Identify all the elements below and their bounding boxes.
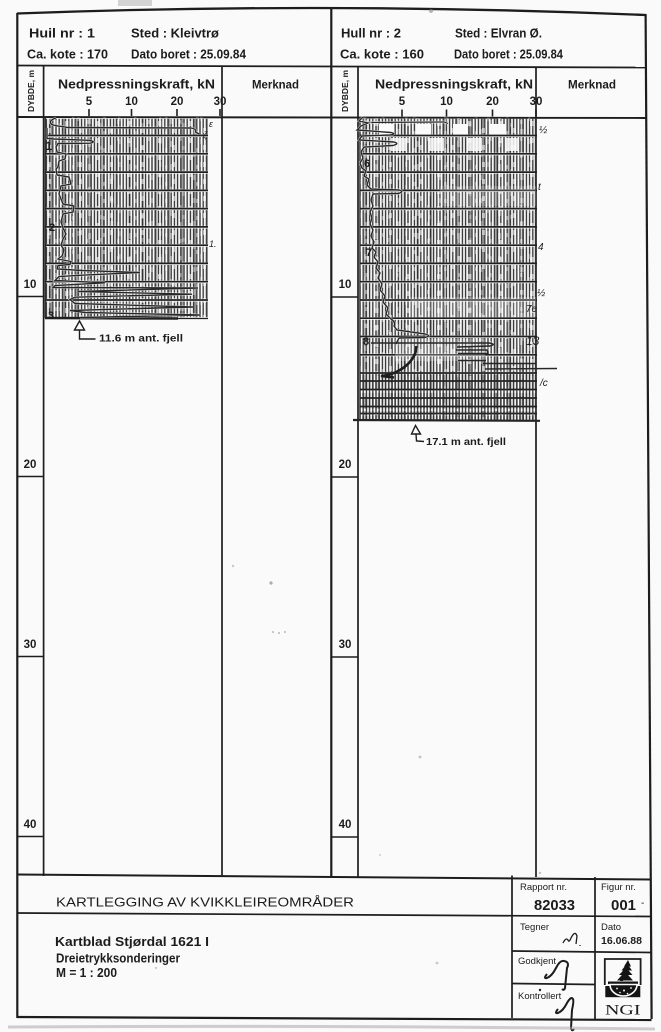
svg-text:Dreietrykksonderinger: Dreietrykksonderinger xyxy=(56,952,180,966)
svg-text:½: ½ xyxy=(539,125,548,136)
svg-text:Figur nr.: Figur nr. xyxy=(601,882,636,893)
svg-text:4: 4 xyxy=(538,242,544,253)
svg-text:40: 40 xyxy=(24,819,37,831)
svg-text:DYBDE, m: DYBDE, m xyxy=(26,70,36,112)
svg-text:Kartblad Stjørdal 1621 I: Kartblad Stjørdal 1621 I xyxy=(55,935,209,949)
svg-text:M = 1 : 200: M = 1 : 200 xyxy=(56,966,117,980)
svg-text:Nedpressningskraft, kN: Nedpressningskraft, kN xyxy=(375,78,533,92)
svg-text:13: 13 xyxy=(526,334,540,348)
svg-text:6: 6 xyxy=(364,158,370,170)
svg-text:30: 30 xyxy=(214,96,227,108)
svg-text:Dato boret : 25.09.84: Dato boret : 25.09.84 xyxy=(454,48,563,62)
svg-text:Huil nr : 1: Huil nr : 1 xyxy=(29,27,95,41)
svg-text:11.6 m ant. fjell: 11.6 m ant. fjell xyxy=(99,334,183,345)
svg-text:Godkjent: Godkjent xyxy=(518,956,556,967)
svg-text:Ca. kote : 160: Ca. kote : 160 xyxy=(340,48,424,62)
svg-text:Rapport nr.: Rapport nr. xyxy=(520,882,567,893)
svg-text:17.1 m ant. fjell: 17.1 m ant. fjell xyxy=(426,437,506,448)
svg-text:20: 20 xyxy=(171,96,184,108)
svg-text:Kontrollert: Kontrollert xyxy=(518,991,562,1002)
svg-text:10: 10 xyxy=(125,96,138,108)
svg-text:-: - xyxy=(641,898,644,909)
svg-text:NGI: NGI xyxy=(605,1003,641,1019)
svg-text:30: 30 xyxy=(24,639,37,651)
svg-text:20: 20 xyxy=(24,459,37,471)
svg-text:Tegner: Tegner xyxy=(520,922,549,933)
svg-text:20: 20 xyxy=(486,96,499,108)
svg-text:82033: 82033 xyxy=(534,897,575,914)
svg-text:20: 20 xyxy=(339,459,352,471)
svg-text:Sted : Elvran Ø.: Sted : Elvran Ø. xyxy=(455,27,542,41)
svg-text:7e: 7e xyxy=(526,304,538,315)
svg-text:10: 10 xyxy=(24,279,37,291)
svg-text:30: 30 xyxy=(339,639,352,651)
svg-text:5: 5 xyxy=(86,96,93,108)
svg-text:DYBDE, m: DYBDE, m xyxy=(340,70,350,112)
svg-text:Hull nr : 2: Hull nr : 2 xyxy=(341,27,401,41)
svg-text:10: 10 xyxy=(339,279,352,291)
svg-text:1.: 1. xyxy=(209,239,217,249)
svg-text:16.06.88: 16.06.88 xyxy=(601,935,642,947)
svg-text:Merknad: Merknad xyxy=(252,78,299,92)
svg-text:7: 7 xyxy=(366,247,372,259)
svg-text:30: 30 xyxy=(530,96,543,108)
svg-text:8: 8 xyxy=(363,336,369,348)
svg-text:Sted : Kleivtrø: Sted : Kleivtrø xyxy=(131,27,219,41)
svg-text:5: 5 xyxy=(399,96,406,108)
svg-text:Dato: Dato xyxy=(601,922,621,933)
svg-text:Nedpressningskraft, kN: Nedpressningskraft, kN xyxy=(58,78,215,92)
svg-text:Merknad: Merknad xyxy=(568,78,616,92)
svg-text:2: 2 xyxy=(49,222,55,234)
svg-text:KARTLEGGING AV KVIKKLEIREOMRÅD: KARTLEGGING AV KVIKKLEIREOMRÅDER xyxy=(56,895,354,910)
svg-text:3: 3 xyxy=(48,310,54,322)
svg-text:1: 1 xyxy=(46,139,53,153)
svg-text:10: 10 xyxy=(440,96,453,108)
svg-text:001: 001 xyxy=(611,897,636,914)
svg-text:Ca. kote : 170: Ca. kote : 170 xyxy=(27,48,108,62)
svg-text:½: ½ xyxy=(537,288,546,299)
svg-text:/c: /c xyxy=(539,378,548,389)
svg-text:Dato boret : 25.09.84: Dato boret : 25.09.84 xyxy=(131,48,246,62)
svg-text:40: 40 xyxy=(339,819,352,831)
